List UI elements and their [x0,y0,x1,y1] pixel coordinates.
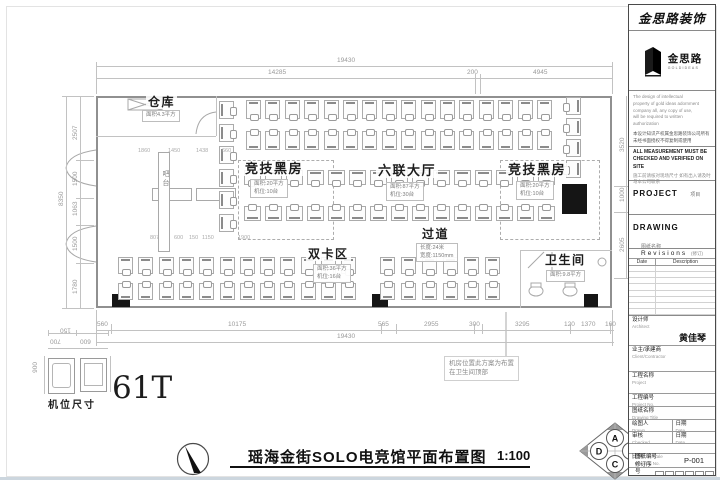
checked-date-field: 审核 Checked 日期 Date [629,432,715,444]
workstation-symbol [518,131,533,150]
plan-line [62,96,94,97]
plan-line [48,348,108,349]
dim-label: 2955 [424,322,438,329]
dim-label: 1900 [238,236,250,242]
workstation-symbol [479,100,494,119]
elevation-letter-c: C [612,460,619,470]
revisions-rows [629,266,715,315]
dim-label: 1370 [581,322,595,329]
workstation-symbol [566,97,581,115]
plan-line [66,96,67,308]
drawing-no-value: P-001 [676,456,712,465]
workstation-symbol [199,257,214,274]
room-note-dark-room-left: 面积:20平方机位:10台 [250,179,288,198]
workstation-symbol [485,257,500,274]
workstation-symbol [382,131,397,150]
revisions-col-date: Date [629,259,656,265]
workstation-symbol [328,206,345,221]
project-name-label-cn: 工程名称 [632,373,712,380]
dim-label: 3295 [515,322,529,329]
title-underline [230,466,530,468]
workstation-symbol [349,170,366,185]
seat-total-label: 61T [112,370,172,406]
workstation-symbol [459,100,474,119]
workstation-symbol [219,214,234,232]
revision-no-box [705,471,714,477]
dim-label: 1438 [196,149,208,155]
plan-line [111,324,112,334]
workstation-symbol [382,100,397,119]
workstation-symbol [422,283,437,300]
dim-label: 19430 [337,58,355,65]
machine-room-note-line: 机房位置此方案为布置 [449,359,514,368]
workstation-symbol [219,101,234,119]
workstation-symbol [240,283,255,300]
workstation-symbol [138,283,153,300]
workstation-symbol [343,131,358,150]
workstation-symbol [475,206,492,221]
revision-no-box [685,471,694,477]
workstation-symbol [220,257,235,274]
entry-door-arc [66,226,96,262]
dim-label: 1450 [168,149,180,155]
disclaimer-line: property of gold ideas adornment [633,101,711,108]
workstation-symbol [566,160,581,178]
workstation-symbol [412,206,429,221]
workstation-symbol [537,100,552,119]
dim-label: 150 [60,326,71,333]
workstation-symbol [401,100,416,119]
project-no-field: 工程编号 Project No. [629,394,715,407]
seat-detail-caption: 机位尺寸 [48,396,96,411]
disclaimer-line-cn: 未经书面授权不得复制或使用 [633,137,711,144]
revision-no-box [655,471,664,477]
workstation-symbol [280,257,295,274]
room-label-warehouse: 仓库 [146,96,177,109]
entry-door-arc [66,150,96,186]
project-label: PROJECT [633,189,678,198]
plan-line [76,160,94,161]
dim-label: 120 [564,322,575,329]
workstation-symbol [401,257,416,274]
revision-no-field: 修订序号 Revision No. [629,468,715,476]
workstation-symbol [246,131,261,150]
workstation-symbol [138,257,153,274]
plan-line [108,330,109,336]
elevation-letter-a: A [612,434,619,444]
workstation-symbol [454,206,471,221]
logo-subtitle: GOLDIDEAS [668,66,703,70]
toilet-tank [565,283,575,287]
plan-line [475,74,476,94]
workstation-symbol [324,131,339,150]
disclaimer-line: authorization [633,121,711,128]
workstation-symbol [498,131,513,150]
workstation-symbol [485,283,500,300]
dim-label: 807 [150,236,159,242]
workstation-symbol [362,100,377,119]
workstation-symbol [328,170,345,185]
workstation-symbol [498,100,513,119]
dim-label: 1500 [73,172,80,186]
workstation-symbol [517,206,534,221]
room-label-dark-room-right: 竞技黑房 [506,163,568,177]
project-name-field: 工程名称 Project [629,372,715,394]
workstation-symbol [304,131,319,150]
workstation-symbol [307,170,324,185]
workstation-symbol [240,257,255,274]
room-note-dual-card-zone: 面积:36平方机位:16台 [313,264,351,283]
workstation-symbol [370,206,387,221]
room-label-dual-card-zone: 双卡区 [306,248,351,261]
dim-label: 3520 [620,138,627,152]
workstation-symbol [260,283,275,300]
warehouse-door-arc [196,112,216,134]
plan-line [62,308,94,309]
drawing-title-label-cn: 图纸名称 [632,408,712,415]
room-note-hall: 面积:87平方机位:30台 [386,182,424,201]
plan-line [396,324,397,334]
drawing-scale-text: 1:100 [497,448,530,463]
workstation-symbol [199,283,214,300]
machine-room-note: 机房位置此方案为布置 在卫生间顶部 [444,356,519,381]
workstation-symbol [433,206,450,221]
revision-row [629,309,715,315]
revisions-title-cn: (修订) [691,251,703,256]
workstation-symbol [443,283,458,300]
room-note-warehouse: 面积4.3平方 [142,110,180,122]
disclaimer-line: company all, any copy of use, [633,108,711,115]
dim-label: 1000 [620,188,627,202]
plan-line [80,96,81,308]
dim-label: 600 [80,337,91,344]
workstation-symbol [324,100,339,119]
workstation-symbol [179,283,194,300]
toilet-tank [531,283,541,287]
disclaimer-line-cn: 本设计知识产权属金思路装饰公司所有 [633,130,711,137]
client-field: 业主/承建商 Client/Contractor [629,346,715,372]
dim-label: 300 [469,322,480,329]
dim-label: 1150 [202,236,214,242]
workstation-symbol [566,139,581,157]
floor-plan-sheet: 吧台 1943014285200494556010175565295530032… [0,0,720,480]
plan-line [96,136,216,137]
workstation-symbol [265,206,282,221]
workstation-symbol [538,206,555,221]
workstation-symbol [244,206,261,221]
machine-room-note-line: 在卫生间顶部 [449,368,514,377]
workstation-symbol [380,257,395,274]
workstation-symbol [362,131,377,150]
workstation-symbol [285,100,300,119]
drawing-no-label-cn: 图纸编号 [635,454,673,461]
drawing-label: DRAWING [633,223,679,232]
company-brand: 金思路装饰 [629,5,715,31]
workstation-symbol [401,131,416,150]
elevation-letter-d: D [596,447,603,457]
dim-label: 1780 [73,280,80,294]
workstation-symbol [265,100,280,119]
workstation-symbol [286,206,303,221]
dim-label: 900 [33,362,40,373]
plan-line [480,74,481,94]
dim-label: 700 [50,337,61,344]
dim-label: 1860 [138,149,150,155]
workstation-symbol [246,100,261,119]
client-label-cn: 业主/承建商 [632,347,712,354]
title-block: 金思路装饰 金思路 GOLDIDEAS The design of intell… [628,4,716,476]
chair-symbol [52,363,71,388]
plan-line [520,250,612,251]
workstation-symbol [459,131,474,150]
workstation-symbol [118,257,133,274]
workstation-symbol [475,170,492,185]
plan-line [520,250,521,308]
project-label-cn: 项目 [690,191,700,198]
workstation-symbol [219,124,234,142]
dim-label: 10175 [228,322,246,329]
site-verification-note: ALL MEASUREMENT MUST BE CHECKED AND VERI… [629,147,715,181]
plan-line [96,66,612,67]
drawn-date-field: 绘图人 Drawn 日期 Date [629,420,715,432]
dim-label: 2605 [620,238,627,252]
project-no-label-cn: 工程编号 [632,395,712,402]
drawn-label-cn: 绘图人 [632,421,669,428]
revisions-title-en: Revisions [641,250,687,257]
workstation-symbol [464,257,479,274]
workstation-symbol [380,283,395,300]
seat-detail-desk-box [80,358,107,392]
workstation-symbol [401,283,416,300]
architect-name: 黄佳琴 [632,329,712,344]
workstation-symbol [301,283,316,300]
workstation-symbol [454,170,471,185]
plan-line [76,225,94,226]
logo-name: 金思路 [668,51,703,66]
workstation-symbol [440,131,455,150]
workstation-symbol [479,131,494,150]
plan-line [482,324,483,334]
project-section: PROJECT 项目 [629,181,715,215]
workstation-symbol [421,100,436,119]
plan-line [96,62,97,94]
dim-label: 8350 [59,192,66,206]
workstation-symbol [440,100,455,119]
drawing-title-text: 瑶海金街SOLO电竞馆平面布置图 [248,446,487,467]
date-label-cn: 日期 [676,433,713,440]
workstation-symbol [421,131,436,150]
copyright-note: The design of intellectual property of g… [629,91,715,147]
project-name-label-en: Project [632,380,712,385]
workstation-symbol [343,100,358,119]
plan-line [76,263,94,264]
workstation-symbol [179,257,194,274]
sink-icon [598,258,606,266]
workstation-symbol [307,206,324,221]
workstation-symbol [260,257,275,274]
building-logo-icon [642,44,664,78]
desk-symbol [84,363,103,386]
dim-label: 14285 [268,70,286,77]
workstation-symbol [496,206,513,221]
workstation-symbol [219,191,234,209]
seat-detail-chair-box [48,358,75,394]
room-label-restroom: 卫生间 [543,254,588,267]
workstation-symbol [341,283,356,300]
dim-label: 160 [605,322,616,329]
plan-line [48,330,49,336]
workstation-symbol [219,169,234,187]
workstation-symbol [118,283,133,300]
workstation-symbol [391,206,408,221]
workstation-symbol [159,257,174,274]
company-logo: 金思路 GOLDIDEAS [629,31,715,91]
dim-label: 1063 [73,202,80,216]
disclaimer-line: The design of intellectual [633,94,711,101]
client-label-en: Client/Contractor [632,354,712,359]
dim-label: 660 [222,149,231,155]
workstation-symbol [220,283,235,300]
revision-no-boxes [655,471,716,477]
dim-label: 4945 [533,70,547,77]
workstation-symbol [159,283,174,300]
plan-line [96,78,612,79]
dim-label: 600 [174,236,183,242]
plan-line [76,198,94,199]
plan-line [44,356,45,394]
workstation-symbol [349,206,366,221]
workstation-symbol [464,283,479,300]
room-label-hall: 六联大厅 [376,164,438,178]
revisions-table: Revisions (修订) Date Description [629,249,715,316]
revisions-title: Revisions (修订) [629,249,715,259]
north-arrow-icon [172,440,218,480]
workstation-symbol [537,131,552,150]
dim-label: 200 [467,70,478,77]
revision-no-box [665,471,674,477]
site-note-en: ALL MEASUREMENT MUST BE CHECKED AND VERI… [633,149,711,171]
plan-line [96,330,614,331]
room-note-corridor: 长度:24米宽度:1150mm [416,243,458,262]
dim-label: 2507 [73,126,80,140]
revision-no-label-cn: 修订序号 [635,462,652,476]
workstation-symbol [518,100,533,119]
room-note-restroom: 面积:9.8平方 [546,270,585,282]
workstation-symbol [265,131,280,150]
disclaimer-line: will be required to written [633,114,711,121]
workstation-symbol [304,100,319,119]
checked-label-cn: 审核 [632,433,669,440]
dim-label: 19430 [337,334,355,341]
plan-line [48,333,108,334]
architect-field: 设计师 Architect 黄佳琴 [629,316,715,346]
revisions-header: Date Description [629,259,715,266]
date-label-cn: 日期 [676,421,713,428]
room-label-corridor: 过道 [420,228,451,241]
drawing-section: DRAWING 图纸名称 [629,215,715,249]
room-note-dark-room-right: 面积:20平方机位:10台 [516,181,554,200]
revisions-col-description: Description [656,259,715,265]
dim-label: 565 [378,322,389,329]
workstation-symbol [566,118,581,136]
workstation-symbol [285,131,300,150]
revision-no-box [675,471,684,477]
architect-label-cn: 设计师 [632,317,712,324]
revision-no-box [695,471,704,477]
plan-line [216,96,217,136]
plan-line [76,330,77,336]
workstation-symbol [280,283,295,300]
workstation-symbol [321,283,336,300]
plan-line [110,356,111,392]
plan-line [612,62,613,94]
dim-label: 1500 [73,237,80,251]
dim-label: 560 [97,322,108,329]
room-label-dark-room-left: 竞技黑房 [243,162,305,176]
drawing-title-field: 图纸名称 Drawing Title [629,407,715,420]
dim-label: 150 [189,236,198,242]
plan-line [96,342,614,343]
